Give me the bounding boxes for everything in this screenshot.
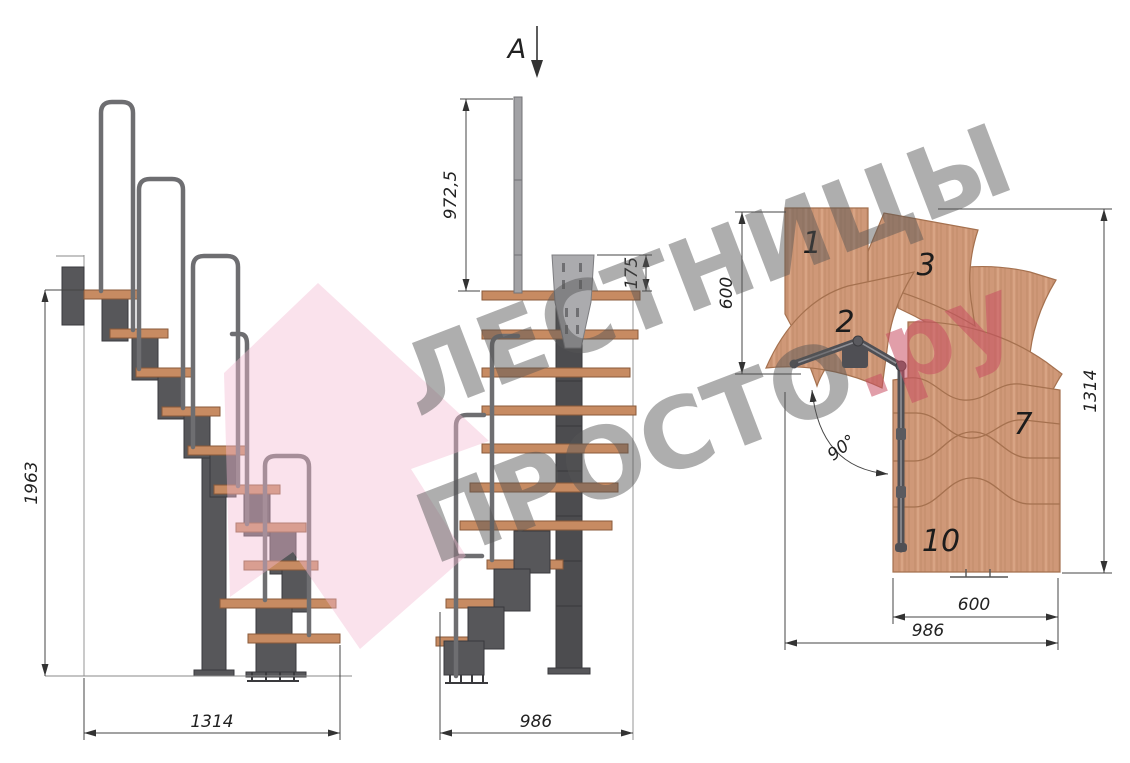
handrail-end-cap <box>895 543 907 552</box>
tread <box>84 290 138 299</box>
section-arrow-head-icon <box>531 60 543 78</box>
wall-bracket <box>62 267 84 325</box>
side-height-dim-label: 1963 <box>22 461 42 504</box>
step-module <box>444 641 484 675</box>
column-base-flange <box>194 670 234 676</box>
side-height-dimension: 1963 <box>22 290 84 676</box>
technical-drawing: A <box>0 0 1130 763</box>
anchor-bolts-icon <box>445 675 488 684</box>
front-rail-height-label: 972,5 <box>441 171 461 220</box>
handrail-joint <box>896 486 906 498</box>
side-width-dim-label: 1314 <box>190 712 233 732</box>
section-marker: A <box>506 26 543 78</box>
plan-total-width-label: 986 <box>912 621 945 641</box>
plan-lower-run <box>893 378 1060 572</box>
tread <box>248 634 340 643</box>
column-base-flange <box>548 668 590 674</box>
front-width-dim-label: 986 <box>520 712 553 732</box>
tread <box>220 599 336 608</box>
plan-run-width-label: 600 <box>958 595 990 615</box>
stair-drawing-sheet: A <box>0 0 1130 763</box>
handrail-joint <box>896 428 906 440</box>
step-module <box>256 643 296 674</box>
plan-length-dim-label: 1314 <box>1081 369 1101 412</box>
tread <box>136 368 194 377</box>
front-rail-height-dimension: 972,5 <box>441 99 513 291</box>
step-module <box>494 569 530 611</box>
section-label: A <box>506 34 526 65</box>
handrail-pole <box>514 97 522 293</box>
step-number: 7 <box>1013 407 1032 442</box>
step-number: 10 <box>922 524 960 559</box>
